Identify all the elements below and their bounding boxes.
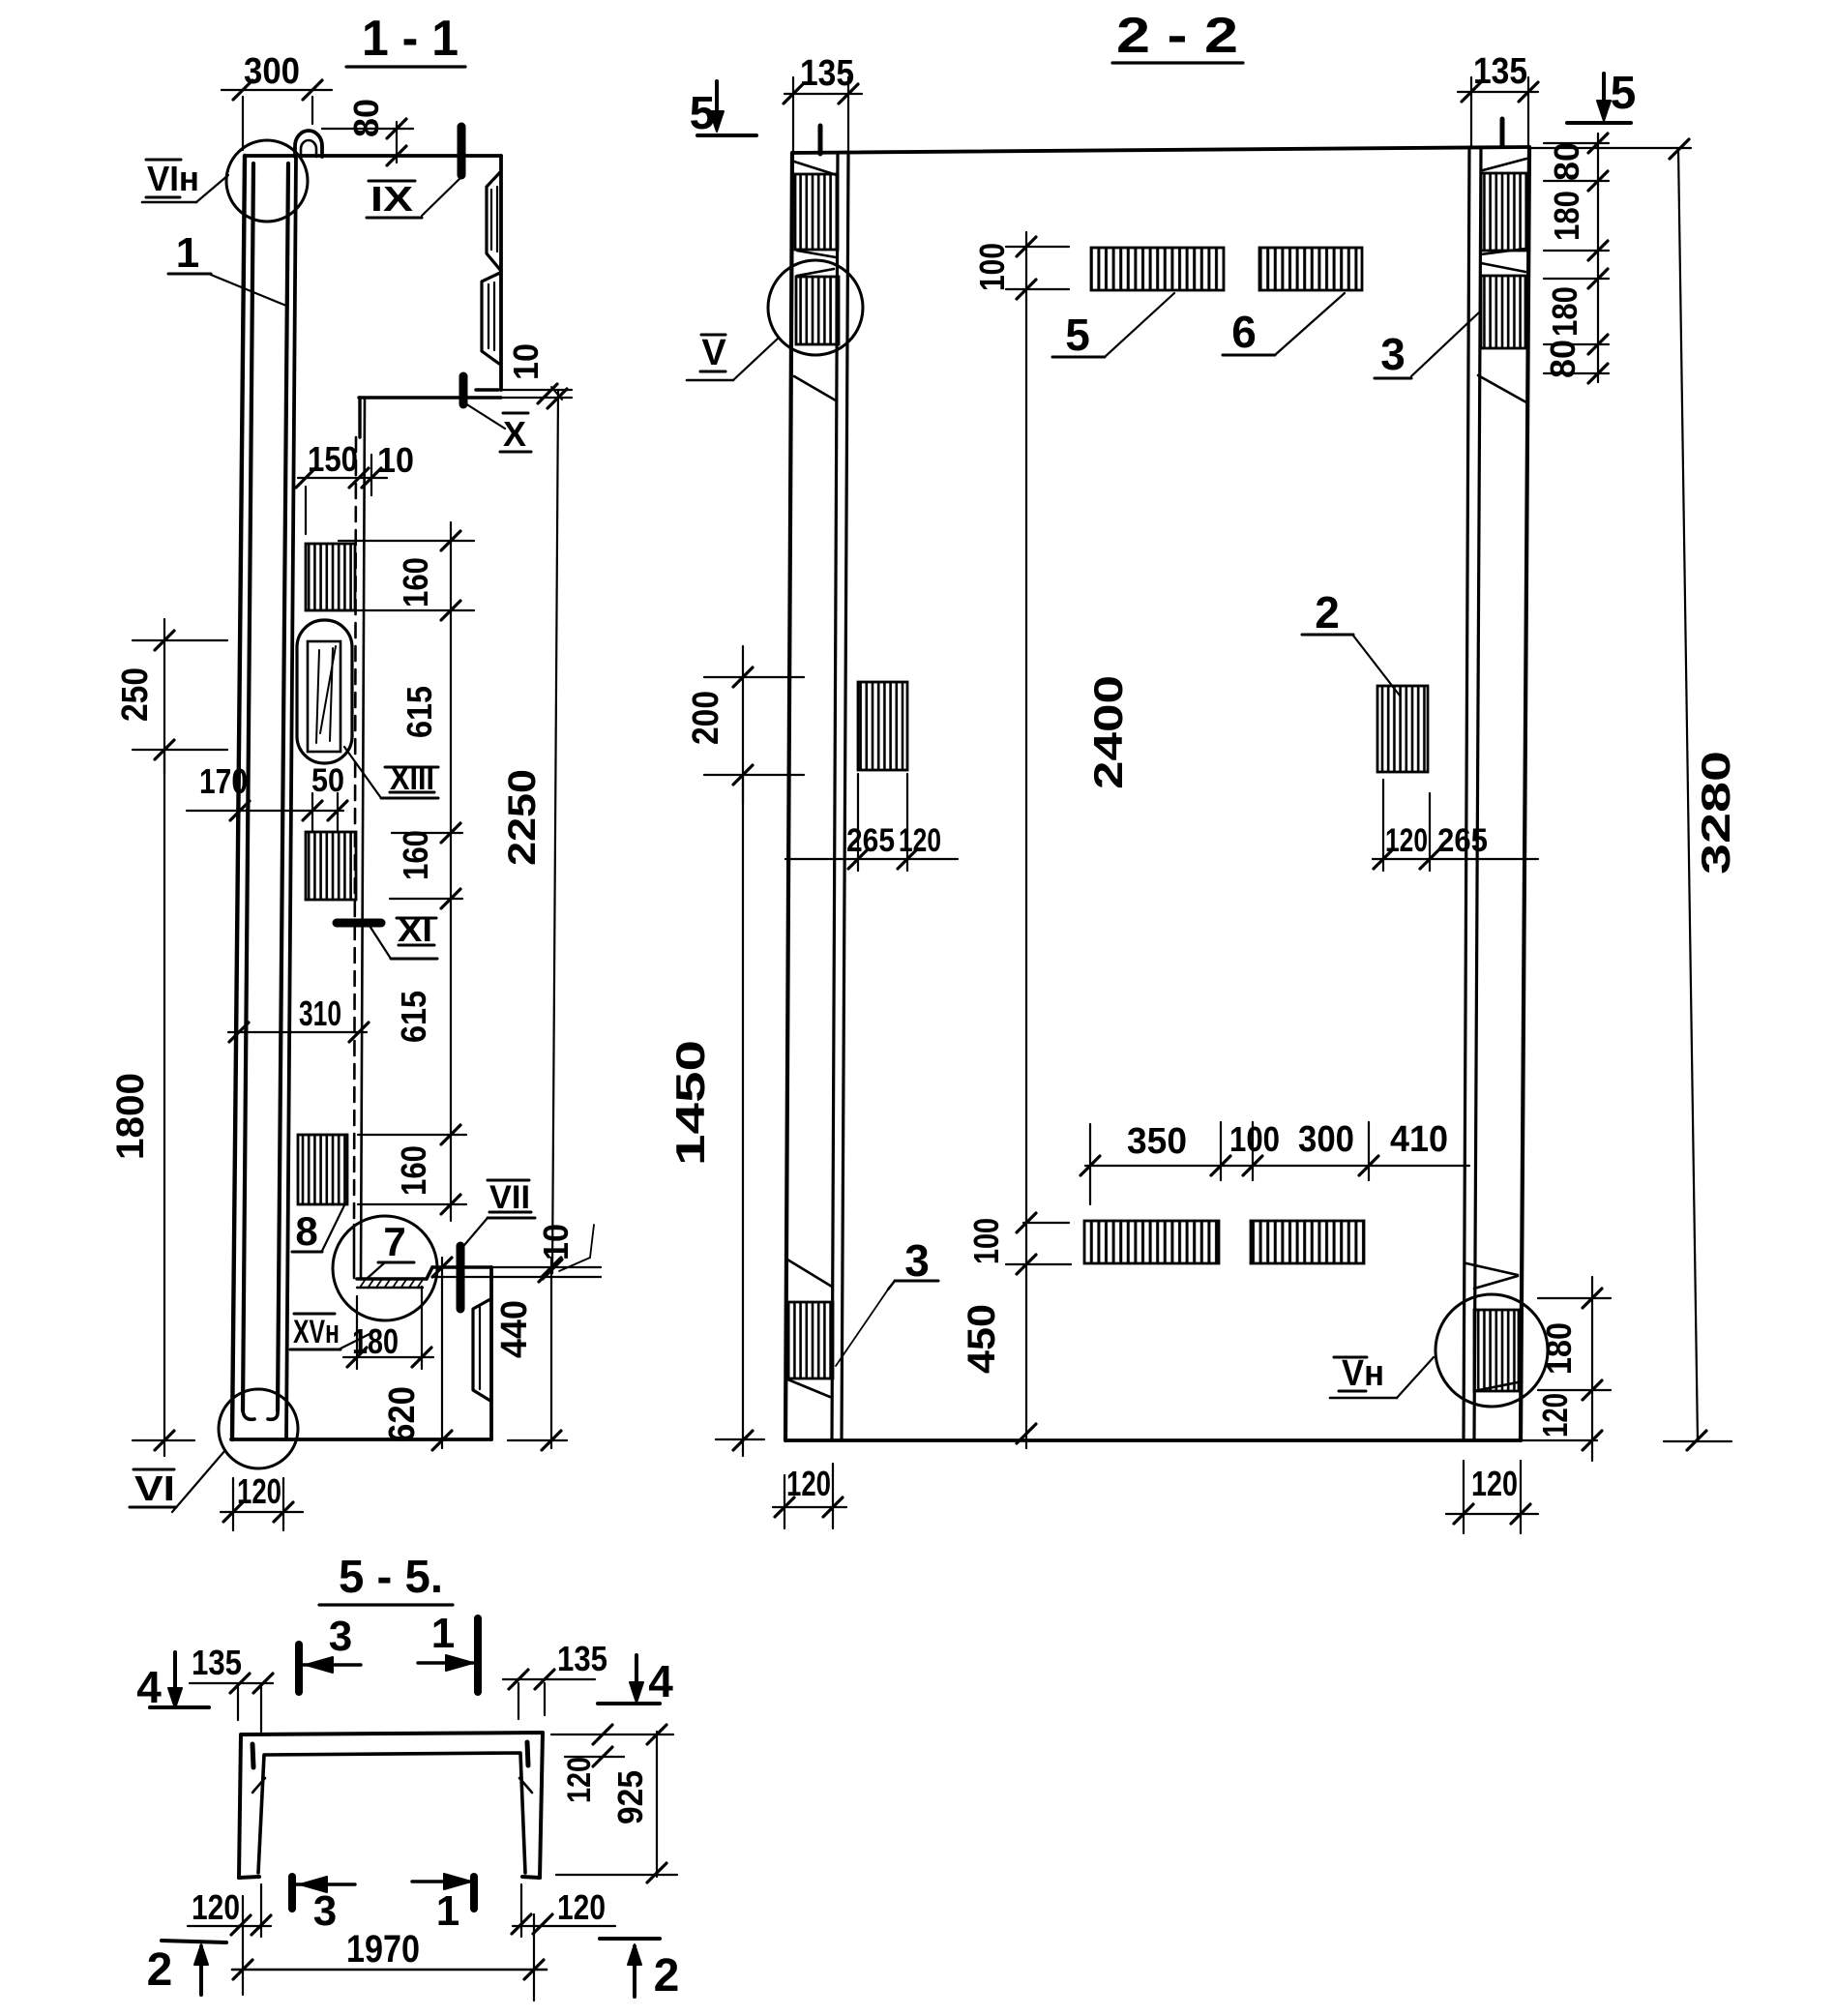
svg-text:80: 80	[1543, 340, 1583, 378]
svg-text:170: 170	[199, 761, 248, 801]
svg-text:80: 80	[346, 99, 386, 137]
svg-text:100: 100	[966, 1218, 1006, 1264]
svg-text:X: X	[503, 414, 526, 454]
svg-text:120: 120	[1471, 1464, 1518, 1503]
svg-text:3: 3	[329, 1613, 352, 1660]
svg-text:XI: XI	[398, 912, 432, 949]
svg-text:120: 120	[192, 1887, 240, 1927]
svg-text:135: 135	[192, 1643, 242, 1682]
svg-text:300: 300	[1298, 1119, 1354, 1160]
svg-text:2: 2	[654, 1950, 680, 2001]
svg-text:135: 135	[800, 53, 854, 94]
svg-text:10: 10	[536, 1224, 576, 1260]
svg-text:100: 100	[972, 243, 1012, 291]
svg-text:150: 150	[308, 439, 358, 479]
svg-text:4: 4	[136, 1662, 162, 1712]
svg-text:50: 50	[311, 762, 344, 799]
svg-text:120: 120	[557, 1887, 606, 1927]
svg-text:1450: 1450	[667, 1040, 713, 1166]
svg-text:120: 120	[237, 1471, 281, 1511]
svg-text:180: 180	[352, 1321, 399, 1361]
svg-text:120: 120	[1535, 1393, 1575, 1438]
svg-text:2400: 2400	[1085, 675, 1131, 789]
svg-text:410: 410	[1390, 1119, 1448, 1160]
svg-text:1800: 1800	[109, 1073, 152, 1160]
svg-text:135: 135	[1473, 51, 1527, 92]
svg-text:IX: IX	[370, 179, 413, 219]
svg-text:2: 2	[147, 1944, 173, 1996]
svg-text:265: 265	[846, 822, 895, 859]
svg-text:350: 350	[1127, 1121, 1187, 1162]
svg-text:160: 160	[394, 1145, 433, 1196]
svg-text:120: 120	[1385, 822, 1428, 859]
svg-text:925: 925	[610, 1770, 650, 1824]
svg-text:3: 3	[1380, 329, 1406, 379]
svg-text:1 - 1: 1 - 1	[362, 11, 459, 67]
svg-text:3: 3	[313, 1887, 337, 1935]
svg-text:7: 7	[383, 1219, 405, 1264]
svg-text:VI: VI	[134, 1468, 175, 1508]
svg-text:5: 5	[1065, 310, 1090, 360]
svg-text:8: 8	[295, 1208, 317, 1254]
svg-text:450: 450	[961, 1304, 1003, 1374]
svg-text:1970: 1970	[346, 1928, 420, 1971]
svg-text:VII: VII	[489, 1179, 530, 1216]
svg-text:V: V	[701, 333, 726, 373]
svg-text:120: 120	[899, 822, 941, 859]
svg-text:160: 160	[396, 557, 435, 608]
svg-text:10: 10	[377, 440, 414, 480]
svg-text:135: 135	[557, 1639, 607, 1678]
svg-text:2250: 2250	[501, 769, 544, 866]
svg-text:6: 6	[1231, 307, 1257, 357]
svg-text:XVн: XVн	[293, 1314, 340, 1350]
svg-text:VIн: VIн	[147, 159, 199, 198]
svg-text:620: 620	[382, 1386, 423, 1442]
svg-text:4: 4	[648, 1656, 673, 1706]
svg-text:440: 440	[494, 1300, 535, 1358]
svg-text:200: 200	[686, 691, 726, 745]
svg-text:615: 615	[394, 991, 433, 1043]
svg-text:100: 100	[1229, 1119, 1280, 1159]
svg-text:5: 5	[1611, 68, 1637, 119]
svg-text:615: 615	[400, 686, 439, 738]
svg-text:180: 180	[1545, 286, 1584, 337]
svg-text:160: 160	[396, 830, 435, 880]
svg-text:1: 1	[176, 229, 199, 277]
svg-text:5 - 5.: 5 - 5.	[339, 1552, 443, 1603]
svg-text:300: 300	[244, 51, 300, 92]
svg-text:1: 1	[436, 1887, 459, 1935]
svg-text:2: 2	[1315, 587, 1340, 637]
svg-text:2 - 2: 2 - 2	[1116, 8, 1238, 64]
svg-text:Vн: Vн	[1342, 1353, 1384, 1394]
svg-text:180: 180	[1539, 1322, 1579, 1375]
svg-text:310: 310	[299, 993, 341, 1033]
svg-text:250: 250	[115, 667, 156, 722]
svg-text:120: 120	[561, 1757, 598, 1803]
svg-text:265: 265	[1437, 822, 1488, 859]
svg-text:180: 180	[1547, 191, 1586, 241]
svg-text:1: 1	[431, 1610, 455, 1657]
svg-text:3280: 3280	[1693, 751, 1738, 875]
svg-text:10: 10	[506, 343, 546, 380]
svg-text:3: 3	[904, 1235, 930, 1286]
